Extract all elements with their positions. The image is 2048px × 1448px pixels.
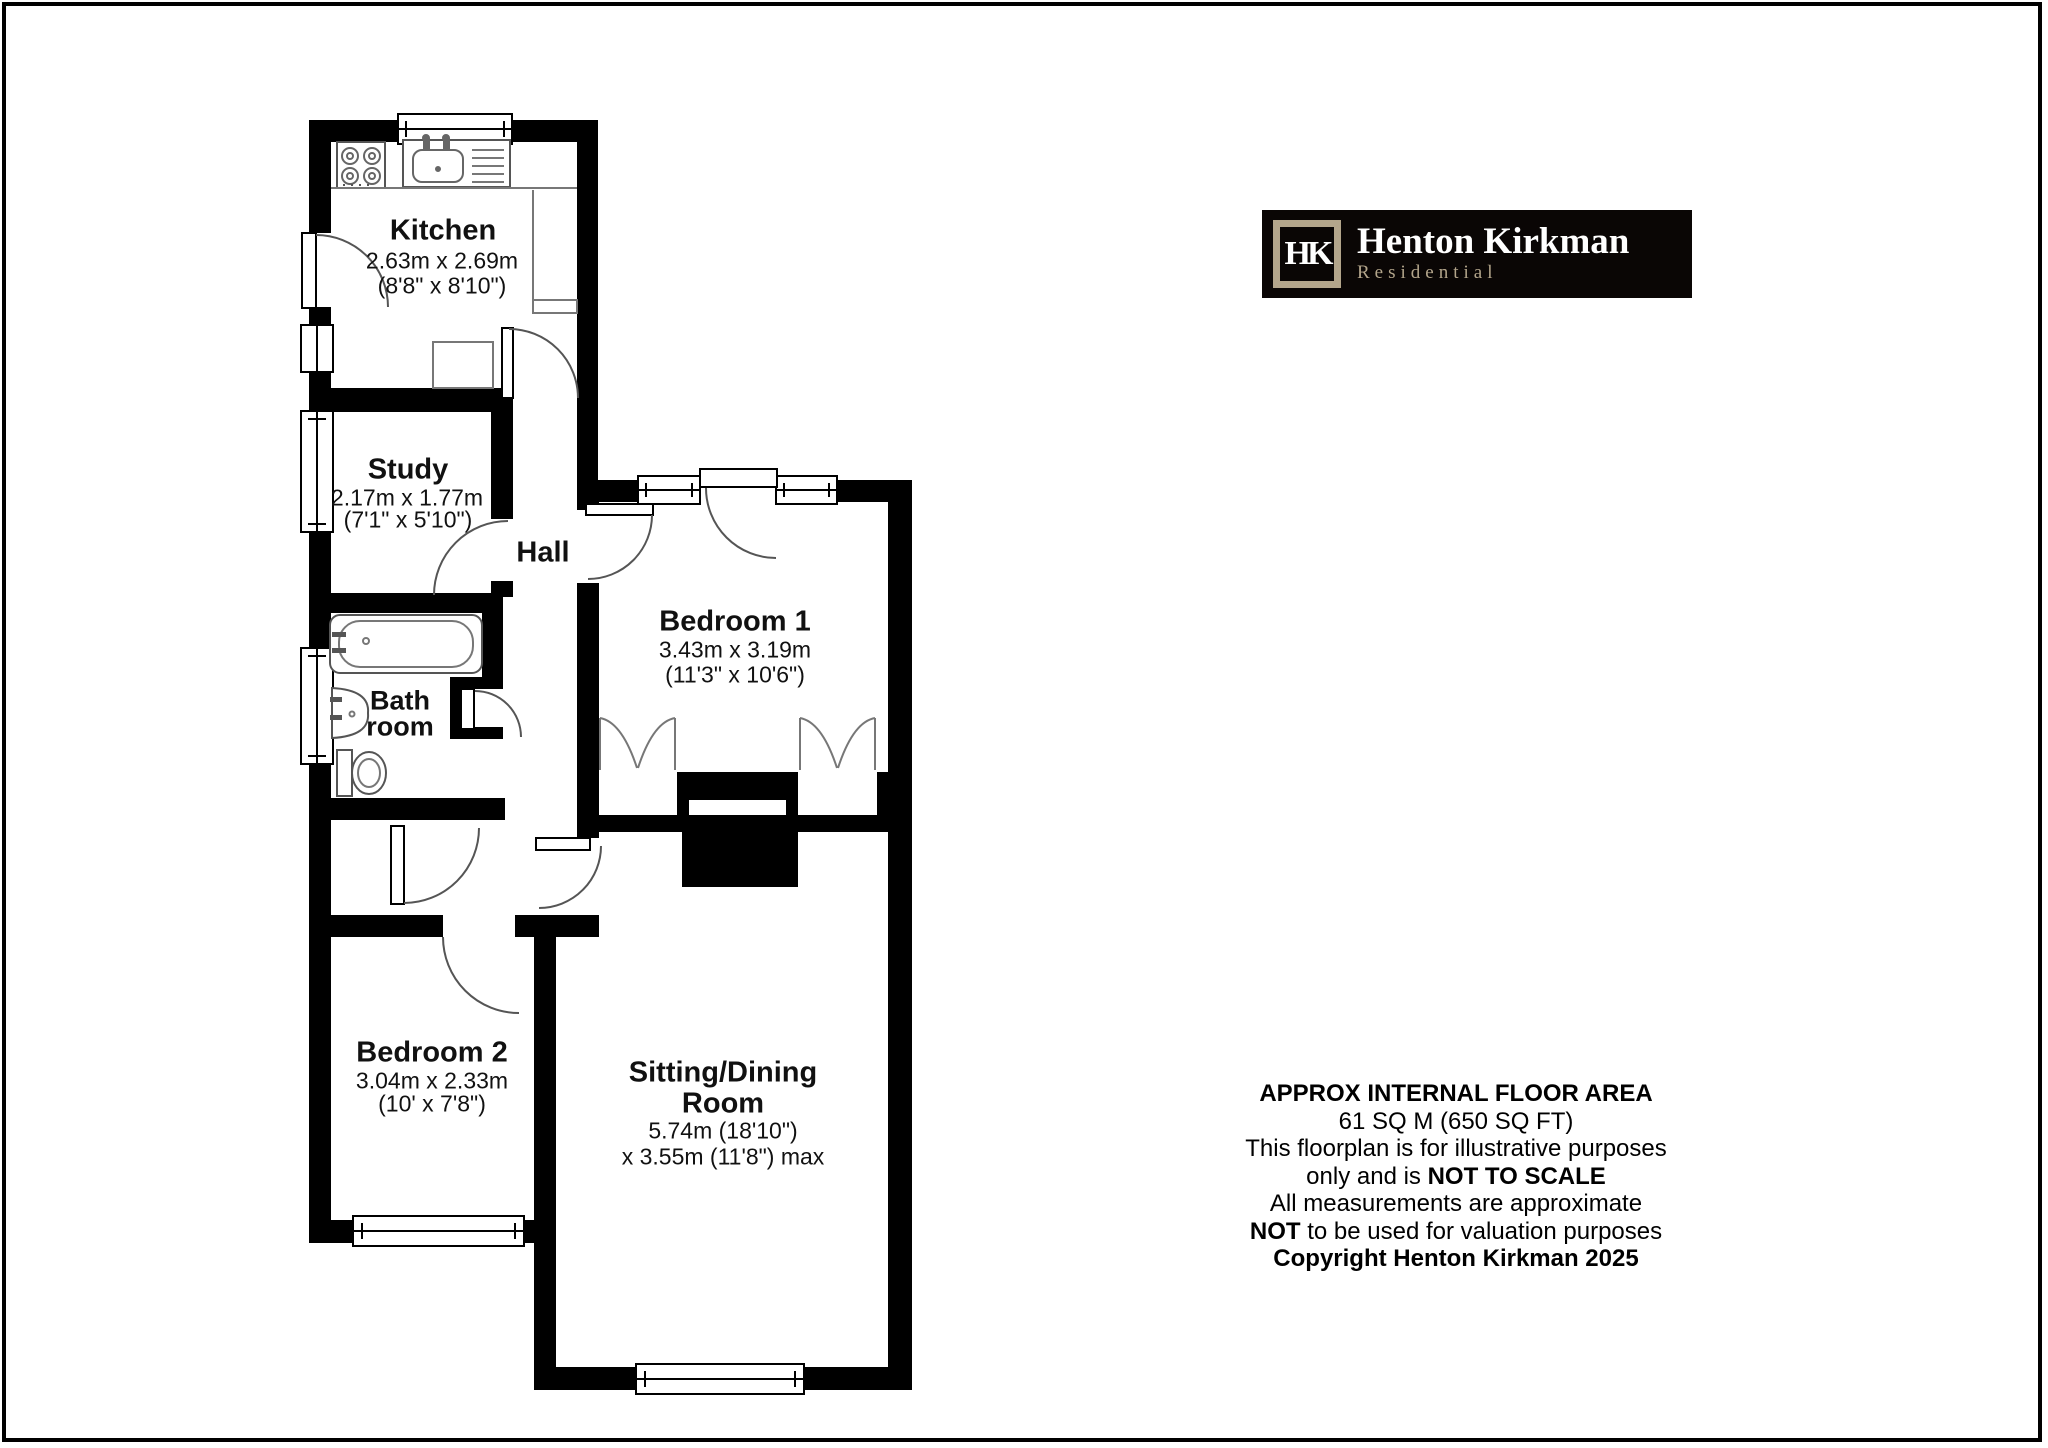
- bedroom1-dim-m: 3.43m x 3.19m: [659, 637, 811, 664]
- hk-monogram-icon: HK: [1273, 220, 1341, 288]
- bedroom1-closet-doors: [600, 718, 875, 770]
- kitchen-unit: [433, 342, 493, 388]
- kitchen-dim-ft: (8'8" x 8'10"): [378, 273, 507, 300]
- walls: [309, 120, 912, 1390]
- kitchen-dim-m: 2.63m x 2.69m: [366, 248, 518, 275]
- agency-name: Henton Kirkman: [1357, 224, 1629, 260]
- disclaimer-line4: only and is NOT TO SCALE: [1106, 1163, 1806, 1191]
- hall-label: Hall: [516, 537, 569, 570]
- study-dim-ft: (7'1" x 5'10"): [344, 507, 473, 534]
- disclaimer-line3: This floorplan is for illustrative purpo…: [1106, 1135, 1806, 1163]
- floor-area-value: 61 SQ M (650 SQ FT): [1106, 1108, 1806, 1136]
- bathroom-label-2: room: [366, 712, 434, 743]
- study-label: Study: [368, 454, 449, 487]
- disclaimer-line6: NOT to be used for valuation purposes: [1106, 1218, 1806, 1246]
- bedroom1-external-door: [700, 469, 777, 558]
- agency-logo: HK Henton Kirkman Residential: [1262, 210, 1692, 298]
- bedroom2-label: Bedroom 2: [356, 1037, 507, 1070]
- bedroom2-window: [353, 1216, 524, 1246]
- bedroom1-label: Bedroom 1: [659, 606, 810, 639]
- hob-icon: [337, 142, 385, 188]
- bedroom2-dim-ft: (10' x 7'8"): [378, 1091, 486, 1118]
- kitchen-hall-door: [502, 328, 578, 398]
- toilet-icon: [337, 750, 386, 796]
- sitting-room-label-2: Room: [682, 1088, 764, 1121]
- sink-icon: [403, 135, 510, 187]
- disclaimer-title: APPROX INTERNAL FLOOR AREA: [1106, 1080, 1806, 1108]
- agency-tagline: Residential: [1357, 262, 1629, 284]
- sitting-room-label-1: Sitting/Dining: [629, 1057, 817, 1090]
- sitting-room-dim-ft: x 3.55m (11'8") max: [622, 1144, 825, 1171]
- disclaimer-block: APPROX INTERNAL FLOOR AREA 61 SQ M (650 …: [1106, 1080, 1806, 1273]
- hk-monogram-text: HK: [1285, 235, 1330, 273]
- sitting-room-dim-m: 5.74m (18'10"): [648, 1118, 797, 1145]
- sitting-room-window: [636, 1364, 804, 1394]
- study-window: [301, 411, 333, 532]
- chimney-breast: [682, 830, 798, 887]
- bathroom-window: [301, 648, 333, 764]
- hall-cupboard-door: [391, 826, 479, 904]
- bedroom2-door: [443, 937, 519, 1013]
- disclaimer-line5: All measurements are approximate: [1106, 1190, 1806, 1218]
- bedroom1-window-right: [776, 476, 837, 504]
- kitchen-label: Kitchen: [390, 215, 496, 248]
- bedroom1-dim-ft: (11'3" x 10'6"): [665, 662, 805, 689]
- kitchen-side-window: [301, 325, 333, 372]
- bedroom1-hall-door: [586, 504, 653, 579]
- basin-icon: [330, 688, 368, 738]
- windows: [301, 114, 837, 1394]
- bathtub-icon: [330, 615, 482, 673]
- bedroom1-window-left: [638, 476, 700, 504]
- sitting-room-door: [536, 838, 601, 908]
- floorplan-page: Kitchen 2.63m x 2.69m (8'8" x 8'10") Stu…: [0, 0, 2048, 1448]
- copyright-line: Copyright Henton Kirkman 2025: [1106, 1245, 1806, 1273]
